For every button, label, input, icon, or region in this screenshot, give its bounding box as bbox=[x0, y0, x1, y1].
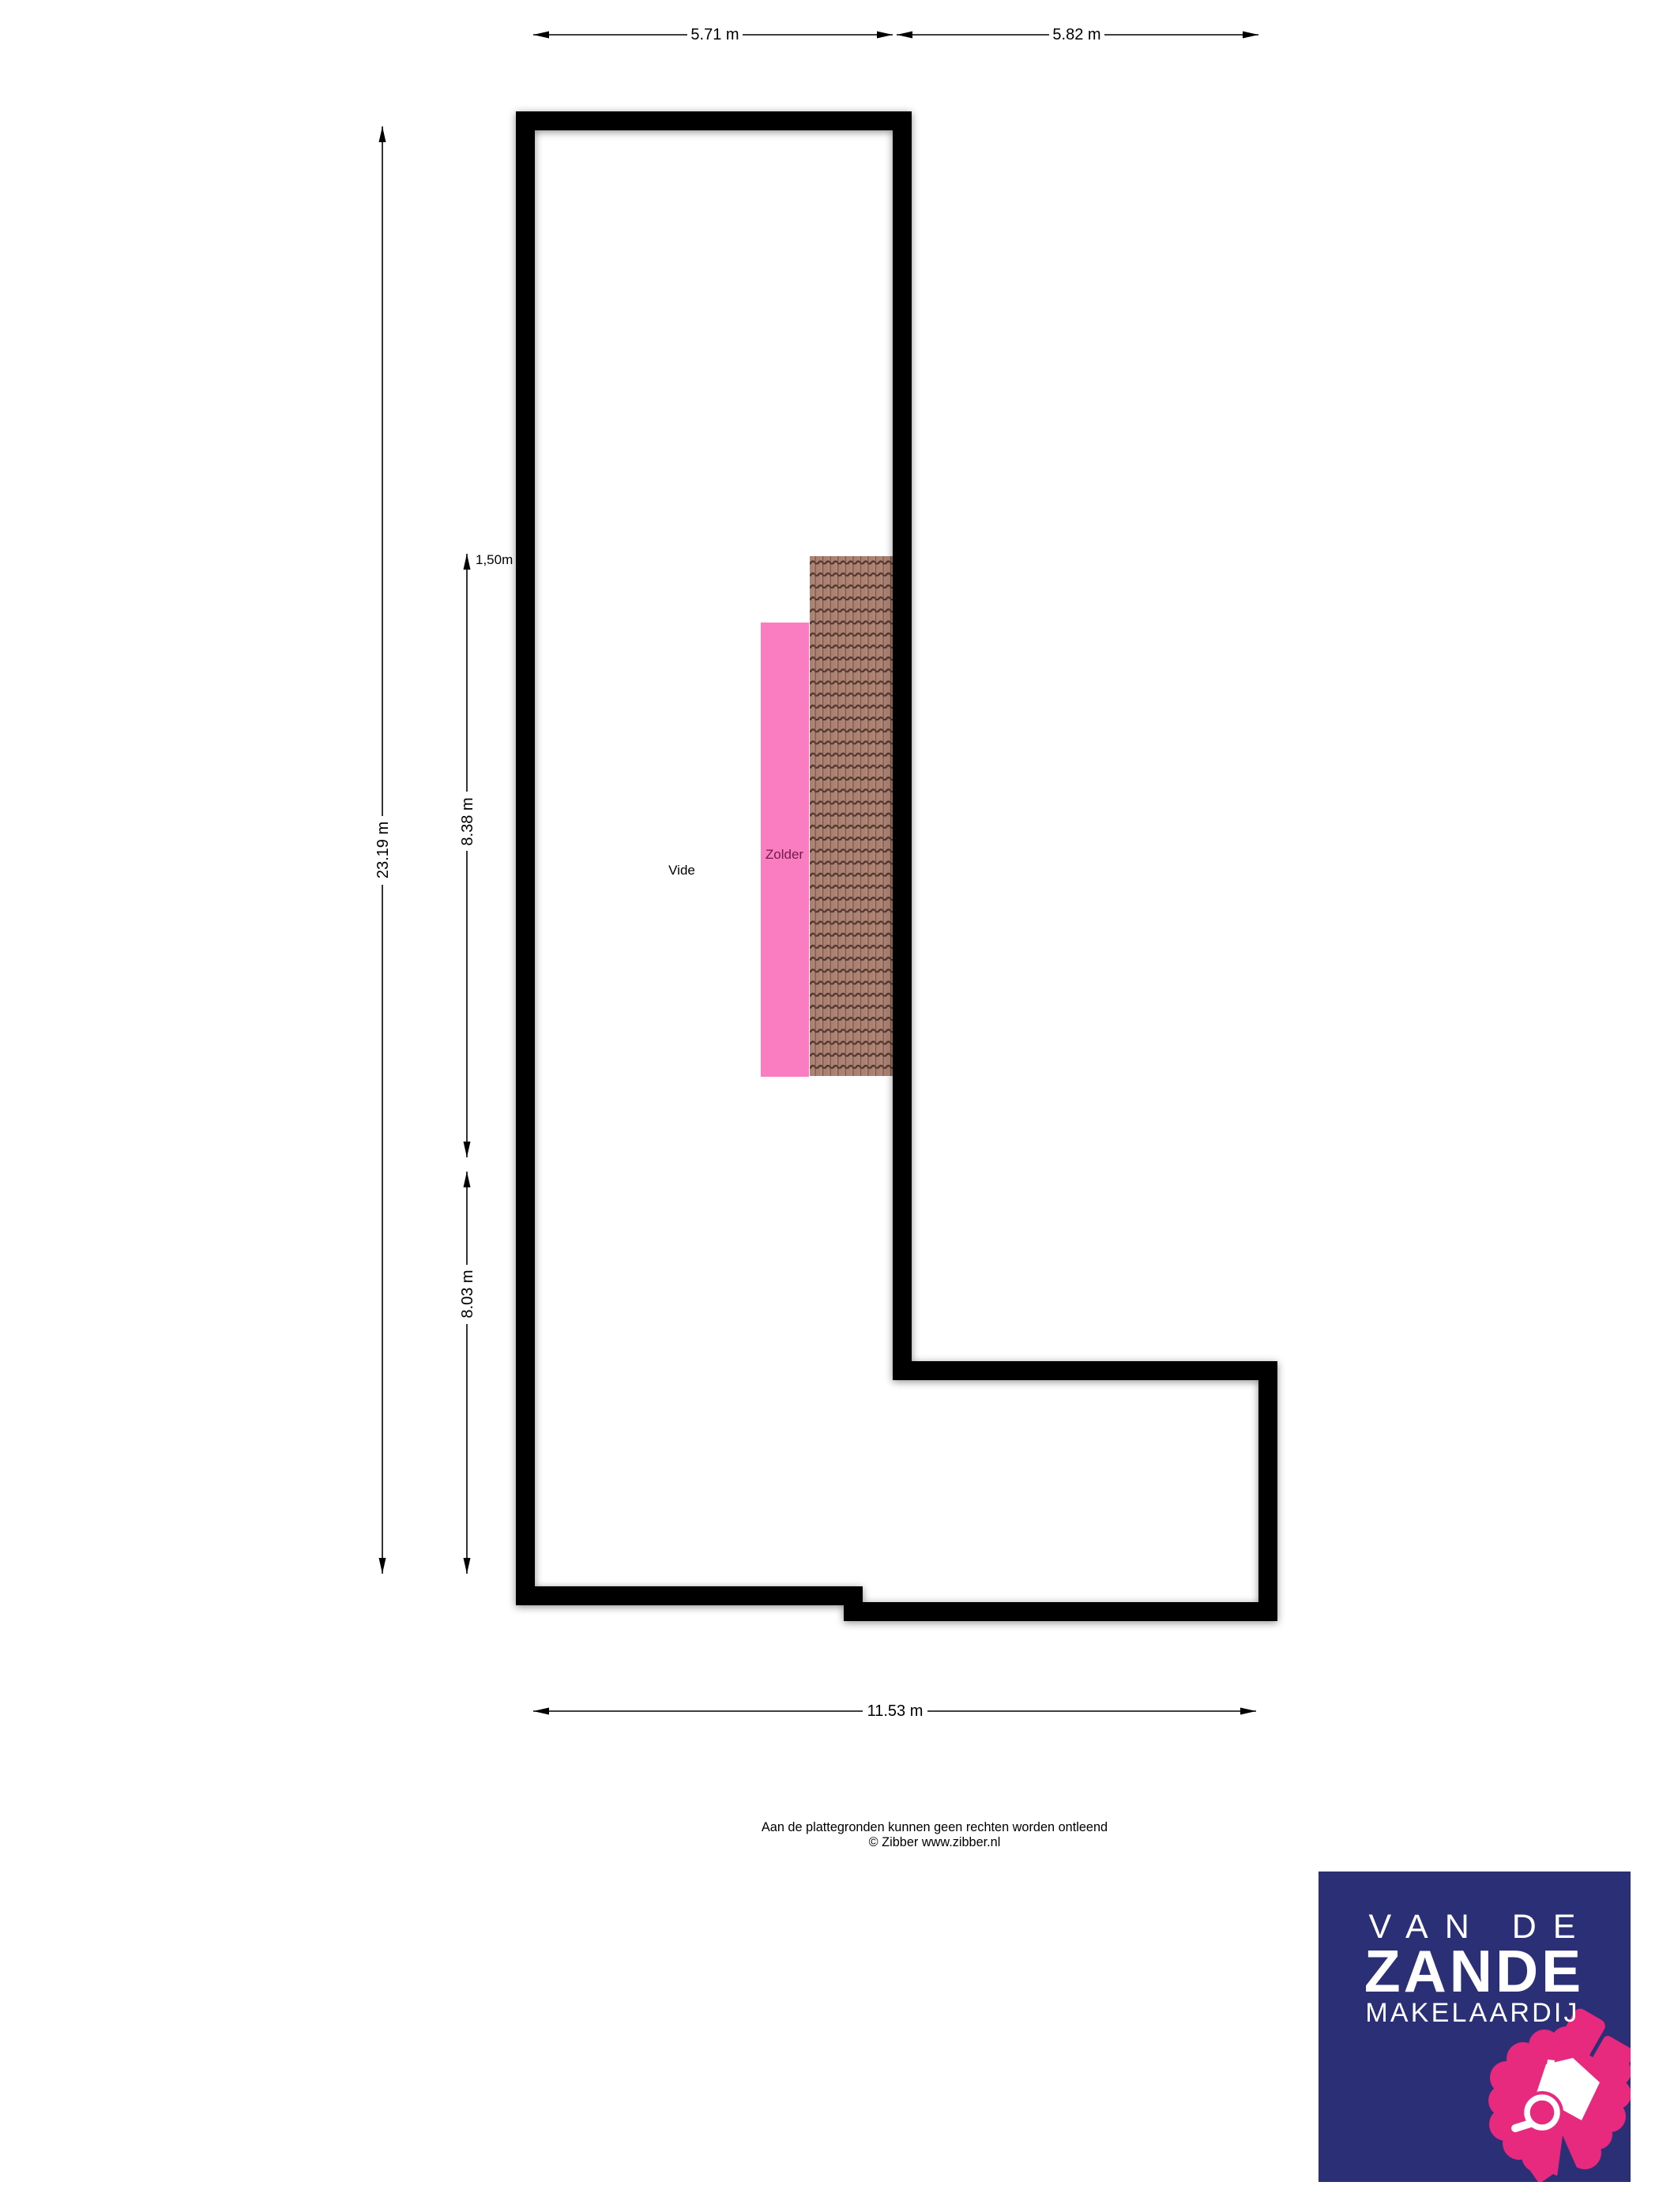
svg-text:MAKELAARDIJ: MAKELAARDIJ bbox=[1365, 1998, 1579, 2028]
svg-text:1,50m: 1,50m bbox=[476, 552, 513, 567]
svg-text:8.38 m: 8.38 m bbox=[459, 797, 476, 845]
svg-text:Zolder: Zolder bbox=[766, 847, 804, 862]
svg-text:5.71 m: 5.71 m bbox=[690, 26, 739, 43]
svg-text:5.82 m: 5.82 m bbox=[1052, 26, 1100, 43]
svg-text:Aan de plattegronden kunnen ge: Aan de plattegronden kunnen geen rechten… bbox=[762, 1820, 1108, 1834]
svg-text:© Zibber www.zibber.nl: © Zibber www.zibber.nl bbox=[869, 1835, 1001, 1849]
svg-text:23.19 m: 23.19 m bbox=[374, 822, 392, 878]
svg-text:11.53 m: 11.53 m bbox=[867, 1702, 924, 1720]
svg-text:Vide: Vide bbox=[668, 863, 695, 878]
svg-text:8.03 m: 8.03 m bbox=[459, 1270, 476, 1318]
svg-text:ZANDE: ZANDE bbox=[1364, 1938, 1584, 2004]
